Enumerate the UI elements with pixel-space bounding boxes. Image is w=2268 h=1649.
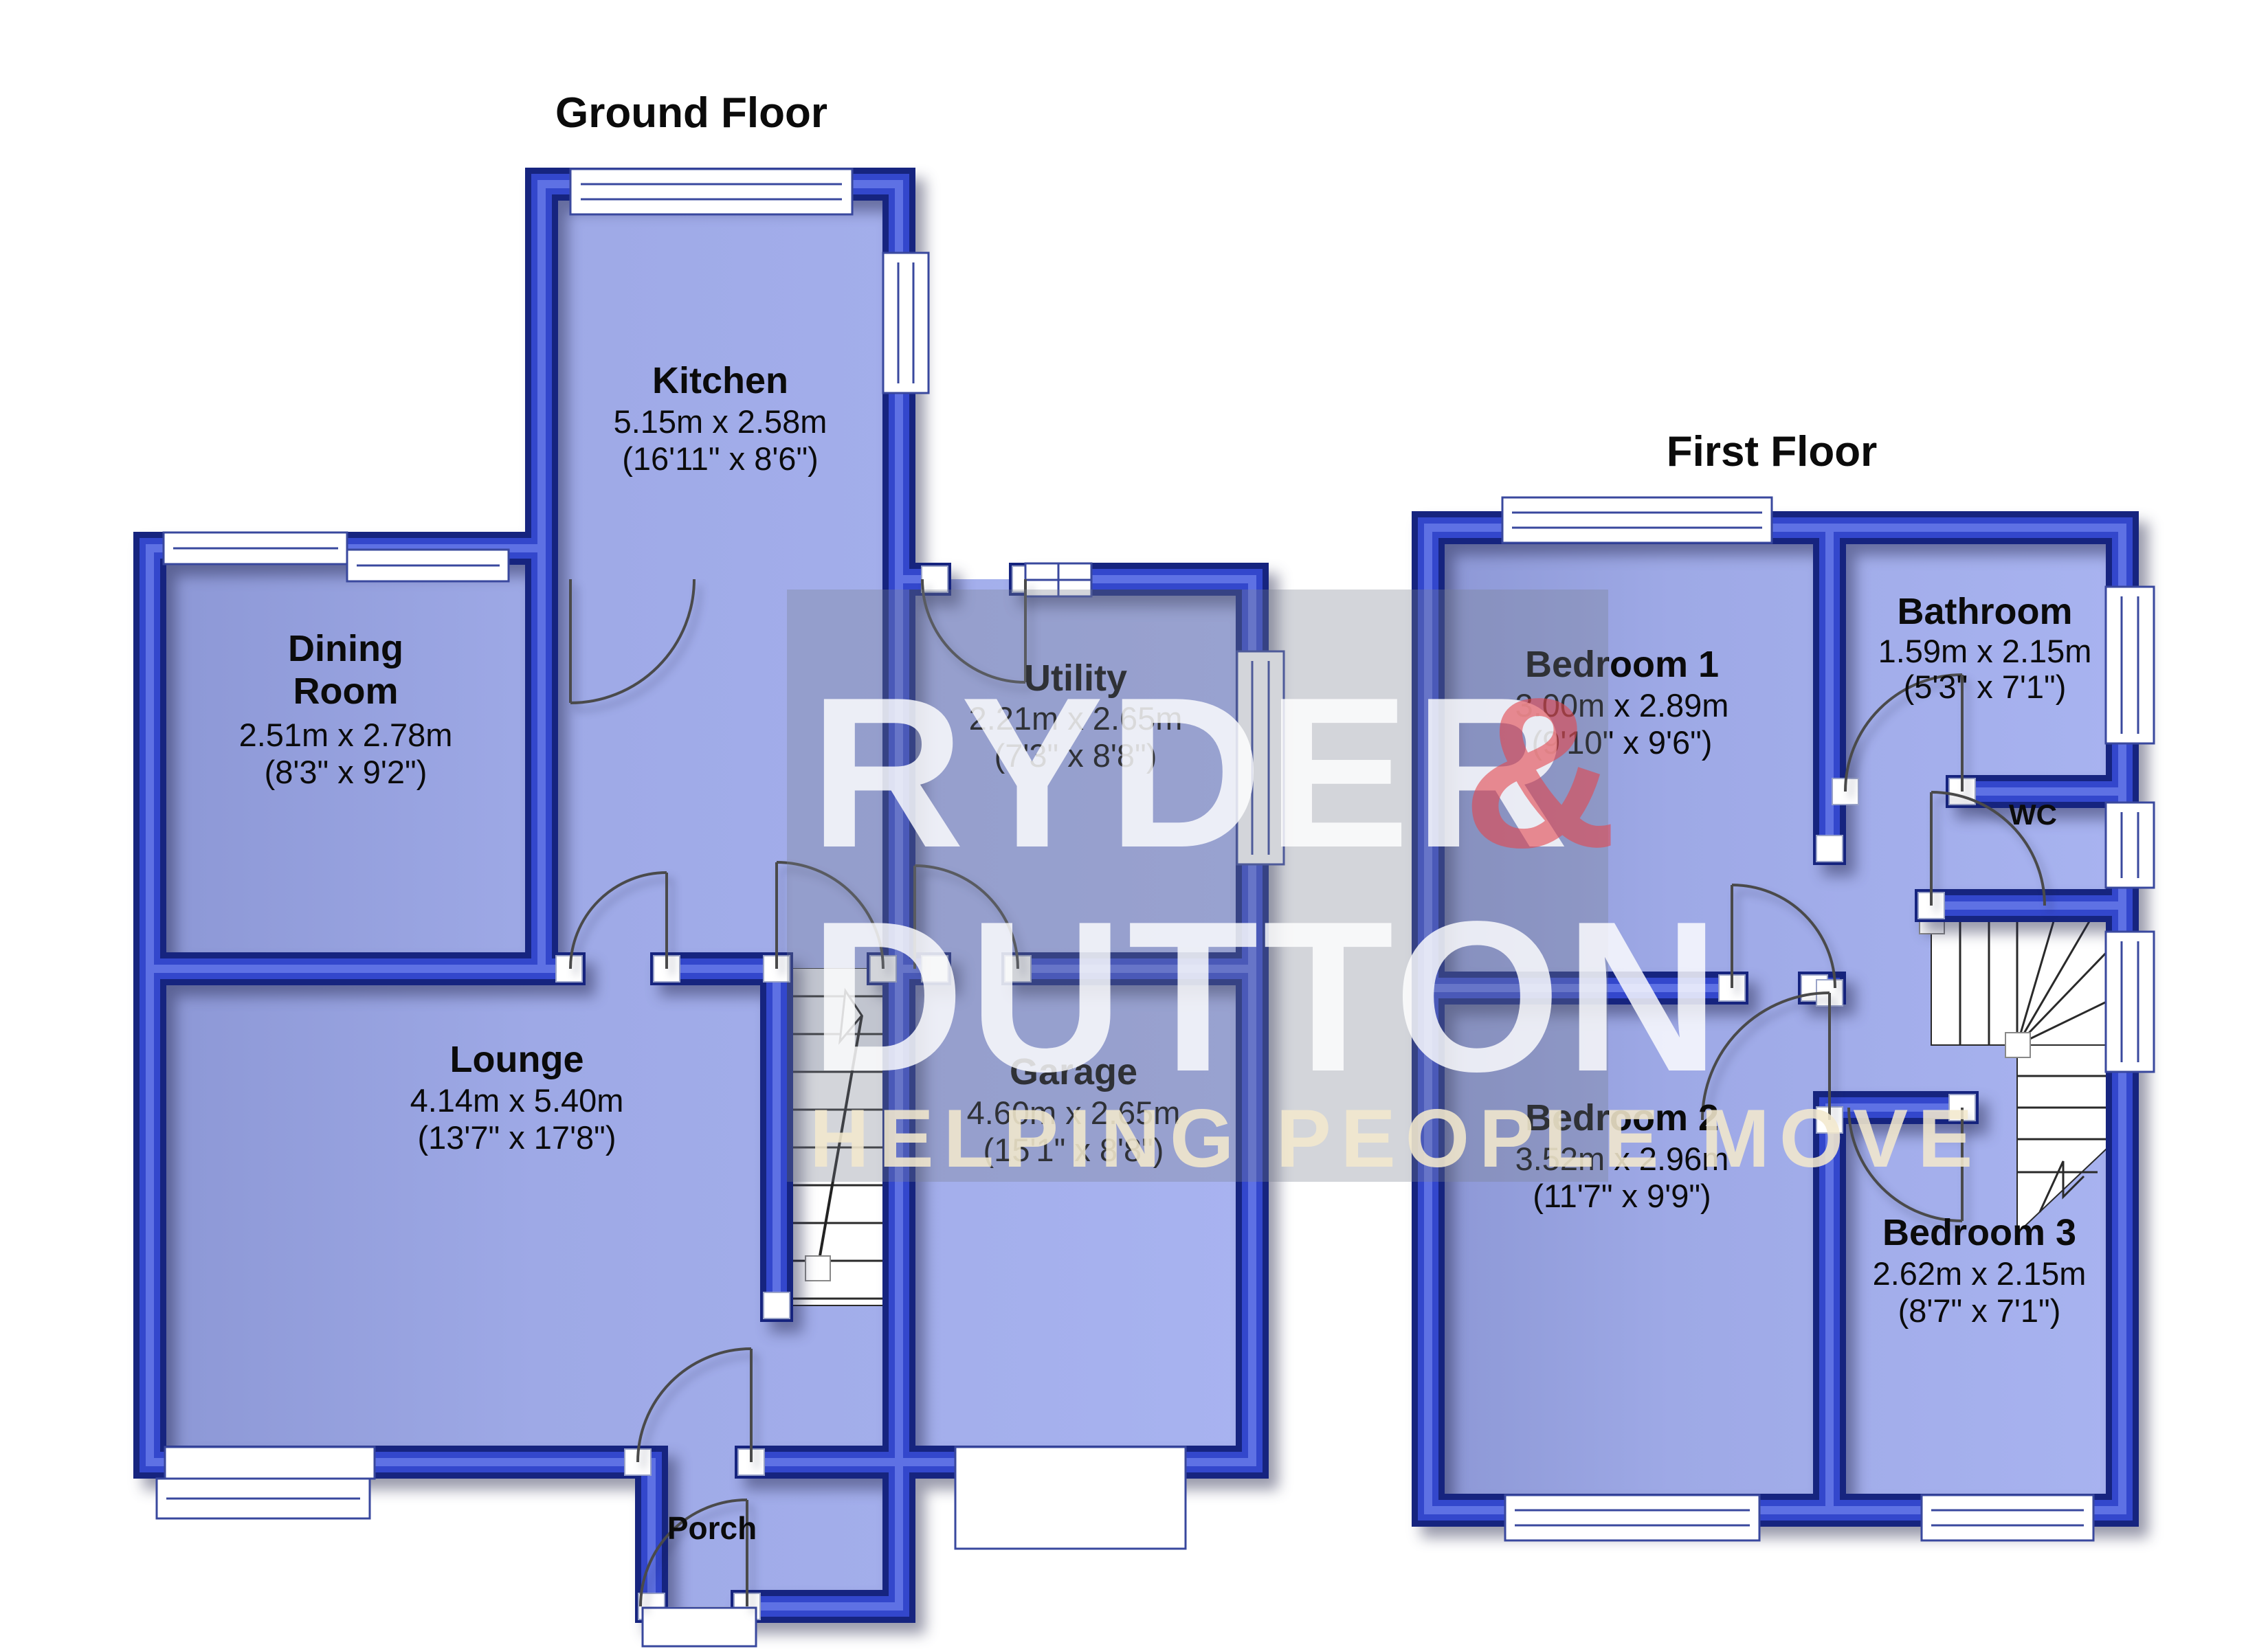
watermark-ampersand: & xyxy=(1463,653,1621,893)
watermark-brand-bottom: DUTTON xyxy=(810,877,1724,1117)
room-dims-imperial: (13'7" x 17'8") xyxy=(417,1119,616,1156)
dining-top-window-right xyxy=(347,550,509,581)
kitchen-top-window xyxy=(570,169,852,214)
bedroom3-bottom-window xyxy=(1922,1495,2093,1540)
kitchen-right-window xyxy=(883,253,929,393)
room-name: Lounge xyxy=(450,1039,584,1080)
room-dims-metric: 5.15m x 2.58m xyxy=(614,403,827,440)
stair-newel xyxy=(805,1256,830,1281)
door-jamb xyxy=(764,1292,790,1319)
dining-top-window-left xyxy=(164,532,347,564)
door-jamb xyxy=(1816,835,1843,862)
porch-label: Porch xyxy=(667,1510,757,1546)
room-dims-metric: 1.59m x 2.15m xyxy=(1878,633,2092,669)
room-dims-imperial: (5'3" x 7'1") xyxy=(1904,669,2067,705)
first-floor-title: First Floor xyxy=(1667,428,1878,475)
room-name-line2: Room xyxy=(293,671,399,712)
room-dims-imperial: (8'7" x 7'1") xyxy=(1898,1292,2061,1329)
bathroom-label: Bathroom 1.59m x 2.15m (5'3" x 7'1") xyxy=(1878,591,2092,705)
room-dims-metric: 4.14m x 5.40m xyxy=(410,1082,624,1119)
stair-upper-run xyxy=(1931,921,2106,1045)
room-name-line1: Dining xyxy=(288,628,403,669)
ground-floor-title: Ground Floor xyxy=(555,89,827,137)
stairs-right-window xyxy=(2106,932,2154,1072)
room-name: Bathroom xyxy=(1898,591,2073,632)
lounge-bottom-window xyxy=(157,1447,375,1518)
stair-newel xyxy=(2005,1033,2030,1057)
wc-right-window xyxy=(2106,803,2154,888)
watermark-brand-top: RYDER xyxy=(810,653,1573,893)
floorplan-canvas: Ground Floor Kitchen 5.15m x 2.58m (16'1… xyxy=(0,0,2268,1649)
room-name: Bedroom 3 xyxy=(1882,1212,2076,1253)
porch-door-threshold xyxy=(643,1608,756,1646)
watermark-tagline: HELPING PEOPLE MOVE xyxy=(810,1092,1982,1185)
room-dims-metric: 2.62m x 2.15m xyxy=(1873,1255,2087,1292)
room-name: Kitchen xyxy=(652,360,788,401)
garage-door xyxy=(955,1447,1186,1549)
bathroom-right-window xyxy=(2106,587,2154,743)
bedroom3-label: Bedroom 3 2.62m x 2.15m (8'7" x 7'1") xyxy=(1873,1212,2087,1329)
bedroom2-bottom-window xyxy=(1505,1495,1759,1540)
room-dims-imperial: (8'3" x 9'2") xyxy=(265,754,427,790)
room-dims-imperial: (16'11" x 8'6") xyxy=(622,440,819,477)
door-jamb xyxy=(922,566,948,592)
wc-label: WC xyxy=(2009,798,2057,831)
room-dims-metric: 2.51m x 2.78m xyxy=(239,717,453,753)
bedroom1-top-window xyxy=(1502,497,1772,543)
